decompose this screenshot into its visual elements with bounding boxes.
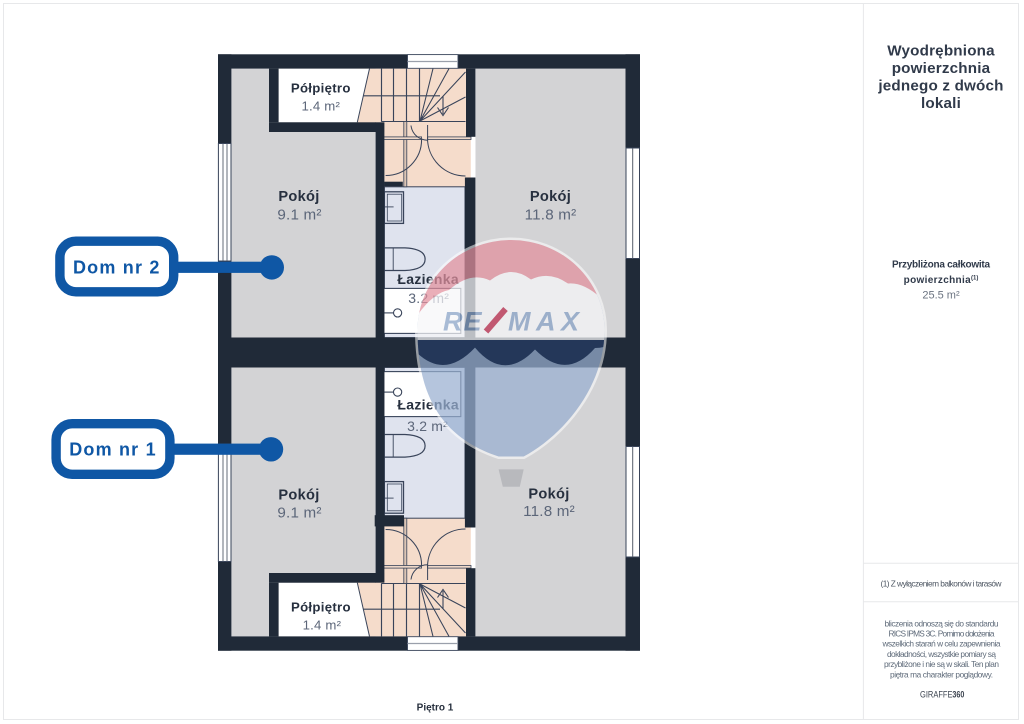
svg-text:Pokój: Pokój [530, 189, 571, 205]
svg-text:powierzchnia(1): powierzchnia(1) [904, 275, 979, 286]
svg-text:11.8 m²: 11.8 m² [523, 503, 575, 520]
svg-text:jednego z dwóch: jednego z dwóch [877, 78, 1003, 95]
svg-text:360: 360 [952, 690, 964, 700]
svg-text:powierzchnia: powierzchnia [892, 60, 991, 77]
svg-text:25.5 m²: 25.5 m² [922, 289, 960, 301]
svg-text:9.1 m²: 9.1 m² [277, 207, 321, 224]
svg-text:wszelkich starań w celu zapewn: wszelkich starań w celu zapewnienia [882, 639, 1001, 649]
svg-text:1.4 m²: 1.4 m² [302, 99, 341, 114]
svg-text:Przybliżona całkowita: Przybliżona całkowita [892, 259, 990, 270]
svg-text:lokali: lokali [921, 95, 961, 112]
svg-text:Dom nr 1: Dom nr 1 [69, 440, 157, 460]
svg-text:Wyodrębniona: Wyodrębniona [887, 43, 995, 60]
svg-text:MAX: MAX [508, 307, 585, 337]
svg-text:Pokój: Pokój [278, 189, 319, 205]
svg-text:GIRAFFE: GIRAFFE [920, 690, 953, 700]
svg-text:piętra ma charakter poglądowy.: piętra ma charakter poglądowy. [890, 669, 993, 679]
svg-text:dokładności, wszystkie pomiary: dokładności, wszystkie pomiary są [887, 649, 996, 659]
svg-text:11.8 m²: 11.8 m² [525, 207, 577, 224]
svg-text:Piętro 1: Piętro 1 [417, 702, 454, 713]
svg-text:1.4 m²: 1.4 m² [303, 618, 342, 633]
svg-text:przybliżone i nie są w skali.: przybliżone i nie są w skali. Ten plan [884, 659, 999, 669]
svg-text:bliczenia odnoszą się do stand: bliczenia odnoszą się do standardu [885, 618, 999, 628]
svg-text:Półpiętro: Półpiętro [291, 80, 351, 95]
svg-text:RICS IPMS 3C. Pomimo dołożenia: RICS IPMS 3C. Pomimo dołożenia [889, 629, 995, 639]
svg-text:Dom nr 2: Dom nr 2 [73, 257, 161, 277]
svg-text:9.1 m²: 9.1 m² [277, 505, 321, 522]
svg-text:RE: RE [443, 307, 483, 337]
svg-text:(1) Z wyłączeniem balkonów i t: (1) Z wyłączeniem balkonów i tarasów [881, 578, 1003, 588]
svg-text:Pokój: Pokój [528, 486, 569, 502]
svg-text:Pokój: Pokój [278, 488, 319, 504]
svg-text:Półpiętro: Półpiętro [291, 600, 351, 615]
